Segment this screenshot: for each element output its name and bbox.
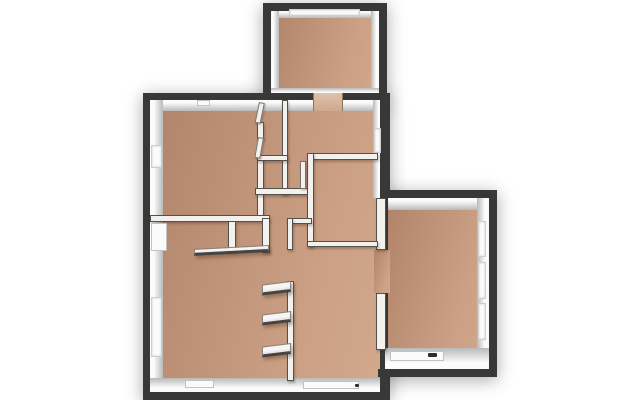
- wall-main-west: [143, 93, 150, 400]
- floor-plan-image: [0, 0, 640, 400]
- door-leaf-roomD: [300, 161, 306, 189]
- window-wing-east-1: [478, 221, 486, 257]
- wall-east-lower: [380, 369, 389, 400]
- floor-right-wing: [388, 198, 489, 369]
- handle-mark-wing-sill: [428, 353, 437, 357]
- floor-top-room: [271, 10, 379, 98]
- iwall-roomD-south: [307, 241, 378, 247]
- window-west-upper: [151, 145, 162, 168]
- window-roomC-east: [374, 128, 381, 153]
- wall-wing-north: [380, 190, 497, 198]
- wall-wing-east: [489, 190, 497, 377]
- iwall-closet-run-south: [287, 281, 294, 381]
- floor-doorway-to-wing: [374, 250, 390, 293]
- sill-south-middle: [303, 381, 359, 389]
- sill-south-left: [185, 380, 214, 388]
- iwall-roomD-top: [307, 153, 378, 160]
- window-top-room: [289, 9, 360, 16]
- iwall-ulroom-south: [150, 215, 270, 222]
- iwall-wing-west-lower: [376, 293, 386, 350]
- wall-main-south: [143, 392, 390, 400]
- wall-east-upper: [380, 93, 388, 198]
- iwall-roomD-west: [307, 153, 314, 247]
- iwall-closet-west: [282, 100, 288, 195]
- wall-main-north: [143, 93, 387, 100]
- window-west-lower: [151, 297, 162, 357]
- handle-mark-south-sill: [355, 384, 359, 387]
- entry-door-west: [151, 223, 167, 251]
- window-wing-east-3: [478, 303, 486, 340]
- face-top-room-west: [271, 10, 279, 98]
- wall-wing-south: [378, 369, 497, 377]
- doorway-top-room: [313, 93, 343, 111]
- sill-north-small: [197, 100, 210, 106]
- face-wing-north: [388, 198, 489, 210]
- face-main-north: [150, 100, 380, 111]
- wall-top-room-west: [263, 3, 271, 100]
- iwall-kitchen-west: [287, 218, 293, 250]
- iwall-hall-north: [255, 188, 310, 195]
- iwall-ulroom-east-seg2: [257, 157, 264, 217]
- wall-top-room-east: [379, 3, 387, 100]
- window-wing-east-2: [478, 262, 486, 299]
- face-top-room-east: [371, 10, 379, 98]
- iwall-closet-top: [257, 155, 288, 161]
